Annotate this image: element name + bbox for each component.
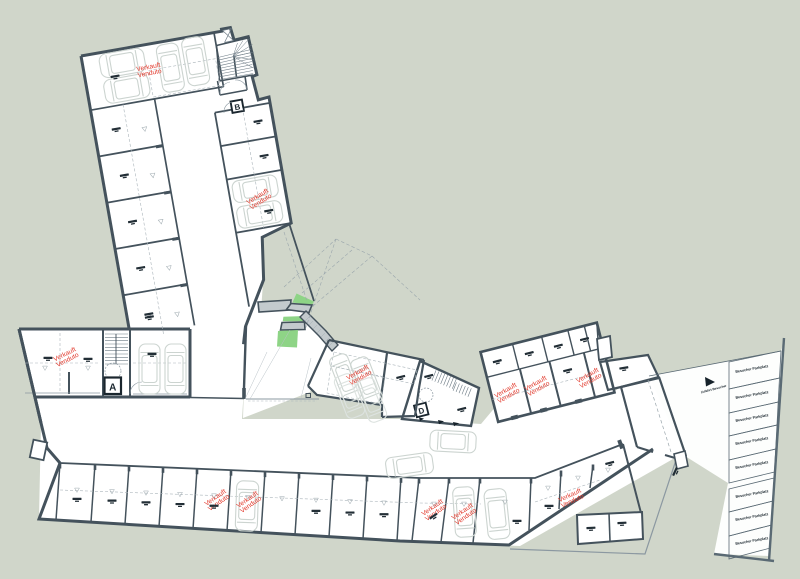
svg-text:A: A [109,383,116,394]
